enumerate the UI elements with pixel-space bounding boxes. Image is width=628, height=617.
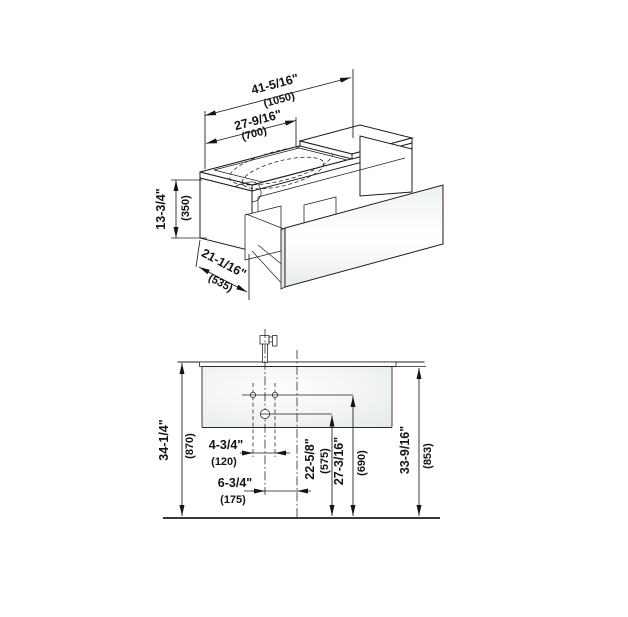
dim-870-inches: 34-1/4" [157,419,171,460]
dim-basin-width: 27-9/16" (700) [206,107,296,146]
dim-853-mm: (853) [422,443,434,469]
dim-depth-inches: 21-1/16" [199,246,248,281]
dim-depth: 21-1/16" (535) [196,240,249,300]
dim-depth-mm: (535) [206,272,235,295]
dim-175-inches: 6-3/4" [218,476,252,490]
dim-drain-height: 22-5/8" (575) [303,416,332,517]
dim-body-height-mm: (350) [180,195,192,221]
technical-drawing-page: 41-5/16" (1050) 27-9/16" (700) 13-3/4" (… [0,0,628,617]
faucet-icon [260,336,277,363]
drawing-canvas: 41-5/16" (1050) 27-9/16" (700) 13-3/4" (… [0,0,628,617]
dim-575-mm: (575) [319,448,331,474]
isometric-view: 41-5/16" (1050) 27-9/16" (700) 13-3/4" (… [154,69,443,300]
dim-body-height: 13-3/4" (350) [154,180,207,238]
dim-120-mm: (120) [211,456,237,468]
dim-575-inches: 22-5/8" [303,438,317,479]
dim-870-mm: (870) [184,433,196,459]
countertop-slab [200,362,397,367]
dim-height-floor-to-countertop: 34-1/4" (870) [157,363,196,516]
drawer-front-panel [281,185,443,289]
dim-body-height-inches: 13-3/4" [154,188,168,229]
dim-175-mm: (175) [220,494,246,506]
dim-853-inches: 33-9/16" [398,426,412,474]
dim-height-floor-to-body-top: 33-9/16" (853) [392,367,434,517]
dim-690-inches: 27-3/16" [332,437,346,485]
dim-tap-hole-spacing: 4-3/4" (120) [209,438,290,468]
dim-690-mm: (690) [356,450,368,476]
dim-120-inches: 4-3/4" [209,438,243,452]
elevation-view: 34-1/4" (870) 33-9/16" (853) 22-5/8" (57… [157,329,440,518]
